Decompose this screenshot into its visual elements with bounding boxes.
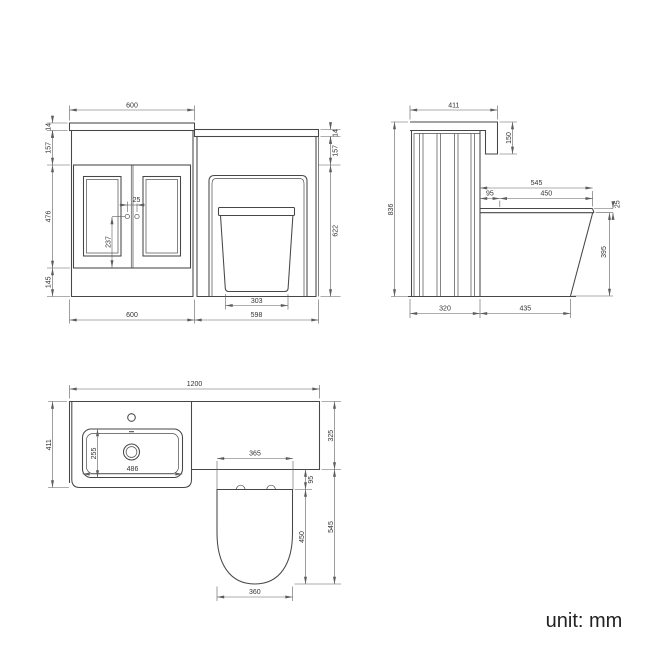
dim-side-seat-thickness: 25 <box>615 200 622 208</box>
plan-dimensions: 1200 411 255 486 365 325 95 <box>46 381 341 601</box>
side-elevation-view: 411 150 836 545 95 450 25 <box>388 103 622 319</box>
dim-front-door-height: 476 <box>46 211 53 223</box>
side-panel-grooves <box>420 134 475 297</box>
dim-front-wc-apron-height: 157 <box>333 145 340 157</box>
tap-hole <box>128 414 136 422</box>
vanity-carcass <box>72 131 194 297</box>
dim-side-pan-projection: 435 <box>519 306 531 313</box>
dim-front-wc-width: 598 <box>251 312 263 319</box>
dim-plan-seat-gap: 95 <box>308 476 315 484</box>
dim-front-pan-base-width: 303 <box>251 298 263 305</box>
dim-side-pan-front-height: 395 <box>601 246 608 258</box>
dim-plan-seat-back-width: 365 <box>249 451 261 458</box>
unit-note: unit: mm <box>546 610 623 632</box>
door-frame <box>74 165 191 268</box>
toilet-pan-front <box>221 216 293 292</box>
toilet-seat-front <box>219 208 295 216</box>
dim-plan-bowl-width: 486 <box>127 466 139 473</box>
dim-side-seat-projection-total: 545 <box>531 180 543 187</box>
front-elevation-view: 600 14 157 476 145 25 23 <box>46 103 341 324</box>
dim-side-end-panel-drop: 150 <box>506 132 513 144</box>
dim-plan-bowl-depth: 255 <box>91 448 98 460</box>
dim-front-apron-height: 157 <box>46 142 53 154</box>
dim-side-seat-setback: 95 <box>486 191 494 198</box>
dim-plan-wc-top-depth: 325 <box>328 430 335 442</box>
dim-side-total-height: 836 <box>388 204 395 216</box>
side-objects <box>408 122 594 297</box>
waste-inner <box>126 447 137 458</box>
dim-front-wc-worktop-thickness: 14 <box>333 129 340 137</box>
dim-front-plinth-height: 145 <box>46 276 53 288</box>
dim-plan-vanity-depth: 411 <box>46 439 53 450</box>
dim-side-unit-depth: 320 <box>439 306 451 313</box>
dim-front-vanity-width: 600 <box>126 312 138 319</box>
dim-front-wc-body-height: 622 <box>333 225 340 237</box>
dim-front-top-width: 600 <box>126 103 138 110</box>
plan-view: 1200 411 255 486 365 325 95 <box>46 381 341 601</box>
dim-plan-total-width: 1200 <box>187 381 203 388</box>
plan-unit-outline <box>70 402 320 484</box>
pan-profile-slope <box>571 213 593 296</box>
technical-drawing: 600 14 157 476 145 25 23 <box>0 0 650 650</box>
dim-side-seat-length: 450 <box>540 191 552 198</box>
wc-carcass <box>197 137 316 297</box>
dim-front-handle-spacing: 25 <box>133 197 141 204</box>
left-door-knob <box>125 214 129 218</box>
vanity-unit-front <box>70 123 195 297</box>
toilet-seat-plan <box>217 490 293 585</box>
dim-front-worktop-thickness: 14 <box>46 123 53 131</box>
wc-unit-front <box>195 130 319 297</box>
dim-plan-seat-front-width: 360 <box>249 589 261 596</box>
dim-side-worktop-depth: 411 <box>448 103 459 110</box>
right-door-knob <box>135 214 139 218</box>
right-door-panel <box>143 177 181 257</box>
seat-hinges <box>236 485 275 489</box>
plan-objects <box>70 402 320 585</box>
wc-worktop <box>195 130 319 137</box>
vanity-worktop <box>70 123 195 131</box>
dim-plan-seat-length: 450 <box>299 531 306 543</box>
dim-front-handle-drop: 237 <box>106 236 113 248</box>
wc-recess-frame <box>209 176 307 297</box>
dim-plan-seat-total-projection: 545 <box>328 521 335 533</box>
